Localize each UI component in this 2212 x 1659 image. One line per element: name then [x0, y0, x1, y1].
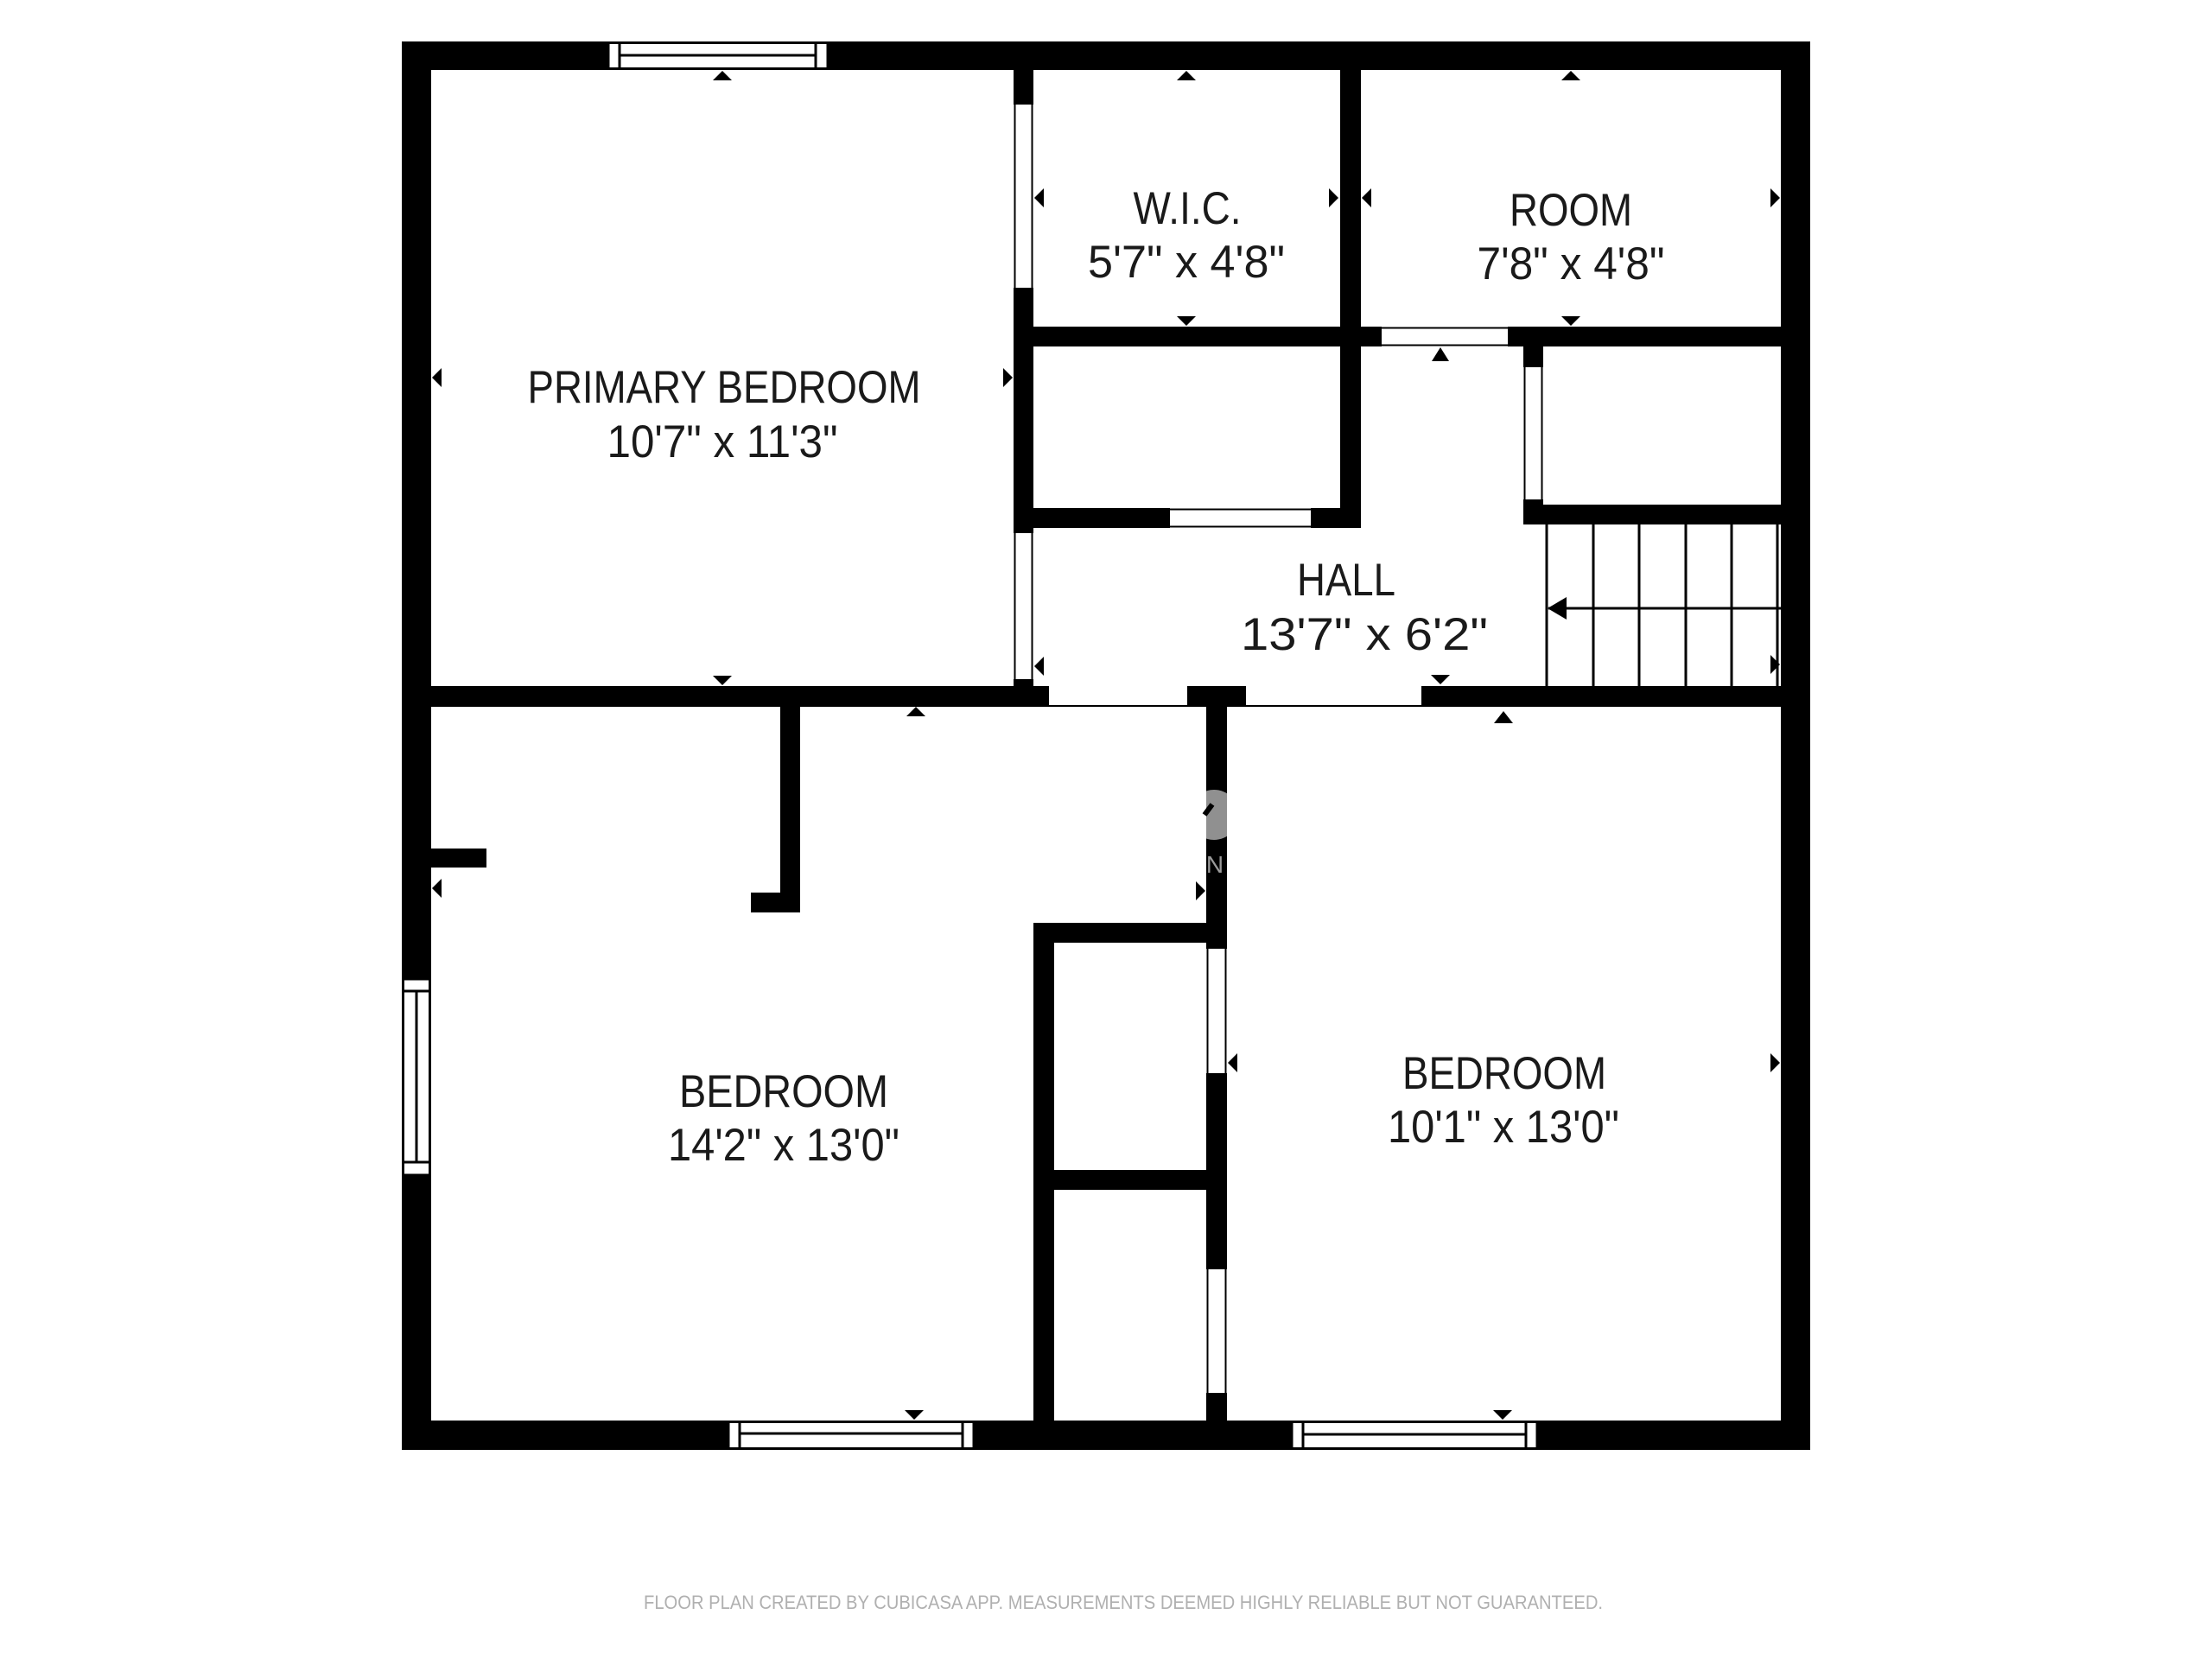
svg-text:W.I.C.: W.I.C.	[1134, 183, 1242, 234]
svg-text:7'8" x 4'8": 7'8" x 4'8"	[1478, 238, 1665, 289]
svg-text:14'2" x 13'0": 14'2" x 13'0"	[668, 1120, 899, 1171]
svg-text:BEDROOM: BEDROOM	[679, 1066, 888, 1117]
svg-text:13'7" x 6'2": 13'7" x 6'2"	[1241, 609, 1488, 660]
svg-text:ROOM: ROOM	[1510, 185, 1632, 236]
svg-text:FLOOR PLAN CREATED BY CUBICASA: FLOOR PLAN CREATED BY CUBICASA APP. MEAS…	[644, 1592, 1603, 1613]
svg-text:BEDROOM: BEDROOM	[1402, 1048, 1606, 1099]
svg-text:N: N	[1206, 851, 1224, 878]
svg-text:10'7" x 11'3": 10'7" x 11'3"	[607, 416, 838, 467]
svg-text:5'7" x 4'8": 5'7" x 4'8"	[1088, 237, 1285, 288]
svg-text:HALL: HALL	[1297, 555, 1395, 606]
svg-text:PRIMARY BEDROOM: PRIMARY BEDROOM	[528, 362, 921, 413]
svg-text:10'1" x 13'0": 10'1" x 13'0"	[1388, 1102, 1619, 1153]
